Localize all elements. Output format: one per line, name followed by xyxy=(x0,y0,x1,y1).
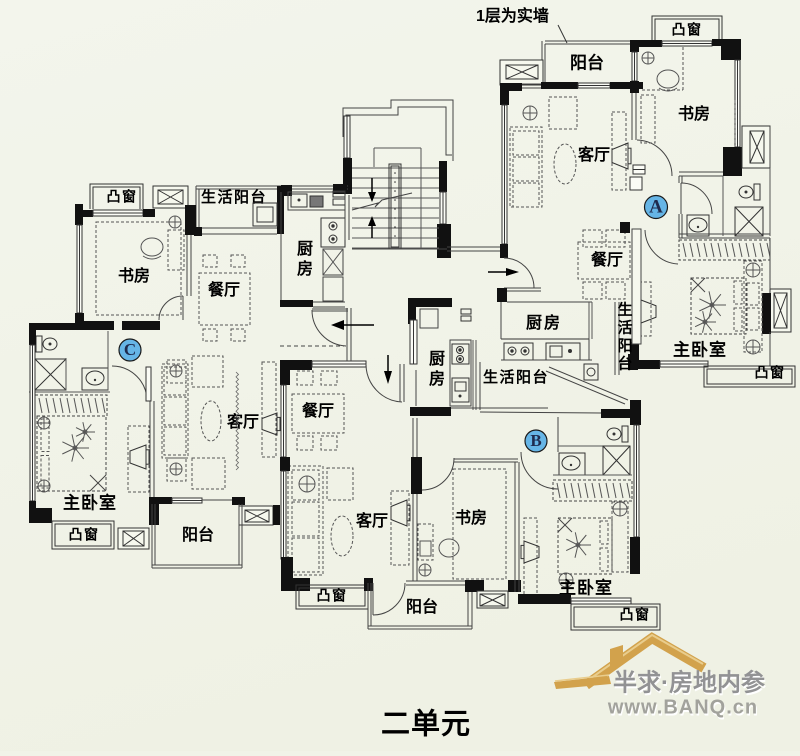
svg-text:厨房: 厨房 xyxy=(526,313,562,332)
svg-text:餐厅: 餐厅 xyxy=(590,250,623,269)
svg-text:生: 生 xyxy=(617,300,632,318)
svg-text:凸窗: 凸窗 xyxy=(620,607,651,623)
svg-text:凸窗: 凸窗 xyxy=(317,588,348,604)
svg-text:客厅: 客厅 xyxy=(356,511,388,530)
svg-text:B: B xyxy=(530,431,541,450)
svg-text:活: 活 xyxy=(617,318,632,336)
svg-text:餐厅: 餐厅 xyxy=(207,280,240,299)
svg-text:房: 房 xyxy=(429,369,445,388)
svg-text:阳台: 阳台 xyxy=(406,597,438,616)
svg-text:餐厅: 餐厅 xyxy=(301,401,334,420)
svg-text:二单元: 二单元 xyxy=(381,708,471,741)
svg-text:生活阳台: 生活阳台 xyxy=(483,368,549,386)
svg-text:凸窗: 凸窗 xyxy=(672,22,703,38)
svg-text:书房: 书房 xyxy=(678,104,710,123)
svg-text:书房: 书房 xyxy=(455,508,487,527)
svg-text:凸窗: 凸窗 xyxy=(69,527,100,543)
svg-text:客厅: 客厅 xyxy=(227,412,259,431)
svg-text:书房: 书房 xyxy=(118,266,150,285)
svg-text:主卧室: 主卧室 xyxy=(63,492,117,512)
svg-text:台: 台 xyxy=(617,354,632,372)
svg-text:www.BANQ.cn: www.BANQ.cn xyxy=(607,696,758,718)
svg-text:厨: 厨 xyxy=(429,350,445,368)
svg-text:阳: 阳 xyxy=(617,337,632,354)
svg-text:客厅: 客厅 xyxy=(578,145,610,164)
svg-text:凸窗: 凸窗 xyxy=(107,189,138,205)
svg-text:1层为实墙: 1层为实墙 xyxy=(476,6,549,25)
svg-text:A: A xyxy=(649,196,663,217)
svg-text:房: 房 xyxy=(297,259,313,278)
svg-text:阳台: 阳台 xyxy=(182,525,214,544)
svg-text:阳台: 阳台 xyxy=(570,52,604,72)
svg-text:C: C xyxy=(124,340,136,359)
svg-text:厨: 厨 xyxy=(297,240,313,258)
svg-text:半求·房地内参: 半求·房地内参 xyxy=(613,668,765,696)
svg-text:凸窗: 凸窗 xyxy=(755,365,786,381)
svg-text:主卧室: 主卧室 xyxy=(673,339,727,359)
